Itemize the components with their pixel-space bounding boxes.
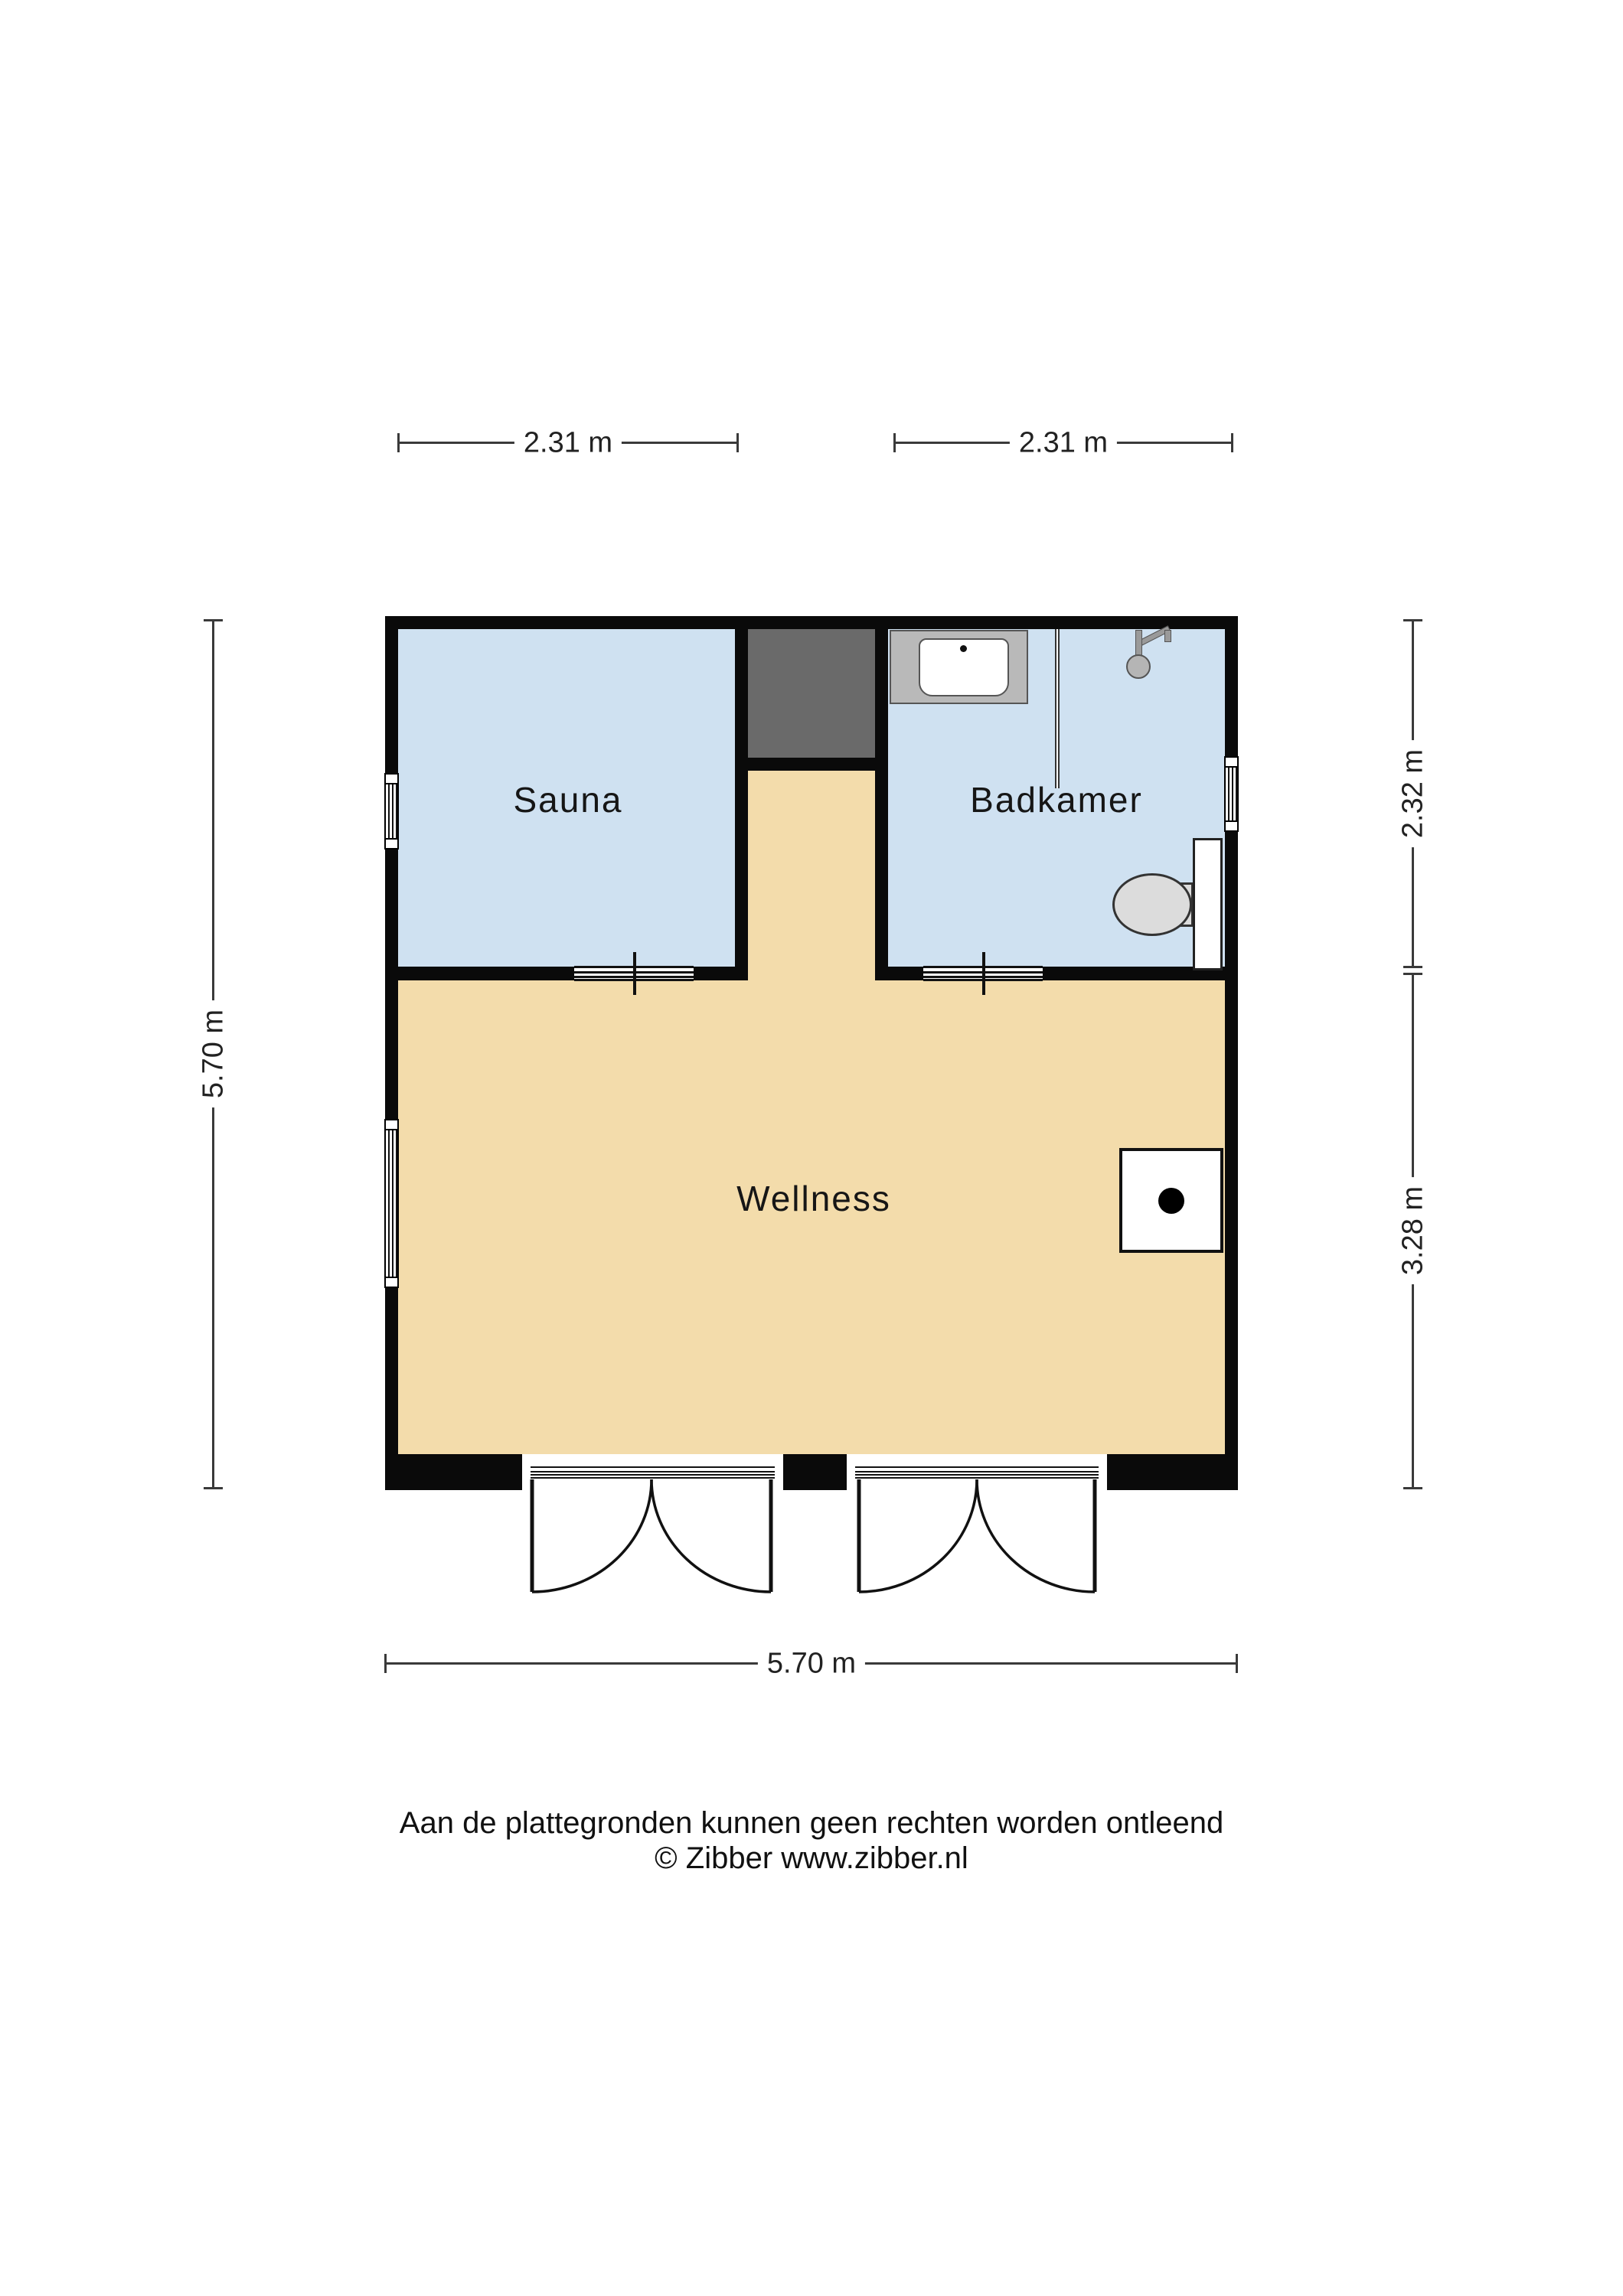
- badkamer-door-tick: [982, 952, 985, 995]
- dim-left-label: 5.70 m: [198, 1000, 230, 1107]
- shower-head-stub-icon: [1164, 630, 1171, 642]
- dim-tick: [736, 433, 739, 452]
- sauna-label: Sauna: [513, 779, 622, 820]
- sauna-window-icon: [384, 773, 399, 850]
- dim-tick: [1403, 1487, 1422, 1489]
- copyright-text: © Zibber www.zibber.nl: [655, 1841, 968, 1876]
- dim-tick: [1231, 433, 1233, 452]
- dim-tick: [893, 433, 896, 452]
- floorplan-canvas: Sauna Badkamer Wellness: [0, 0, 1623, 2296]
- dim-tick: [204, 619, 223, 621]
- shower-head-icon: [1126, 654, 1151, 679]
- dim-top-left-label: 2.31 m: [514, 427, 622, 460]
- toilet-cistern-icon: [1193, 838, 1223, 970]
- wellness-window-icon: [384, 1119, 399, 1288]
- dim-top-right-label: 2.31 m: [1010, 427, 1117, 460]
- shower-drain-icon: [960, 645, 967, 652]
- stove-dot-icon: [1158, 1188, 1184, 1214]
- badkamer-window-icon: [1224, 756, 1239, 832]
- dim-right-bottom-label: 3.28 m: [1397, 1177, 1430, 1284]
- double-door-swing-icons: [459, 1446, 1148, 1607]
- window-cap: [386, 1120, 397, 1130]
- dim-tick: [397, 433, 400, 452]
- wellness-label: Wellness: [736, 1178, 891, 1219]
- dim-tick: [1236, 1654, 1238, 1673]
- dim-right-top-label: 2.32 m: [1397, 740, 1430, 847]
- window-cap: [386, 838, 397, 848]
- window-glass: [1226, 768, 1237, 820]
- stove-icon: [1119, 1148, 1223, 1253]
- technical-niche: [748, 629, 875, 758]
- window-glass: [386, 1130, 397, 1277]
- dim-tick: [1403, 966, 1422, 968]
- dim-tick: [384, 1654, 387, 1673]
- dim-tick: [1403, 619, 1422, 621]
- window-cap: [1226, 758, 1237, 768]
- disclaimer-text: Aan de plattegronden kunnen geen rechten…: [400, 1806, 1223, 1841]
- corridor-floor: [748, 771, 875, 980]
- toilet-bowl-icon: [1112, 873, 1192, 936]
- dim-tick: [1403, 973, 1422, 975]
- sauna-door-tick: [633, 952, 636, 995]
- dim-tick: [204, 1487, 223, 1489]
- dim-bottom-label: 5.70 m: [758, 1648, 865, 1681]
- window-cap: [386, 1277, 397, 1287]
- glass-screen-icon: [1055, 629, 1060, 788]
- window-cap: [1226, 820, 1237, 830]
- window-glass: [386, 784, 397, 838]
- window-cap: [386, 775, 397, 784]
